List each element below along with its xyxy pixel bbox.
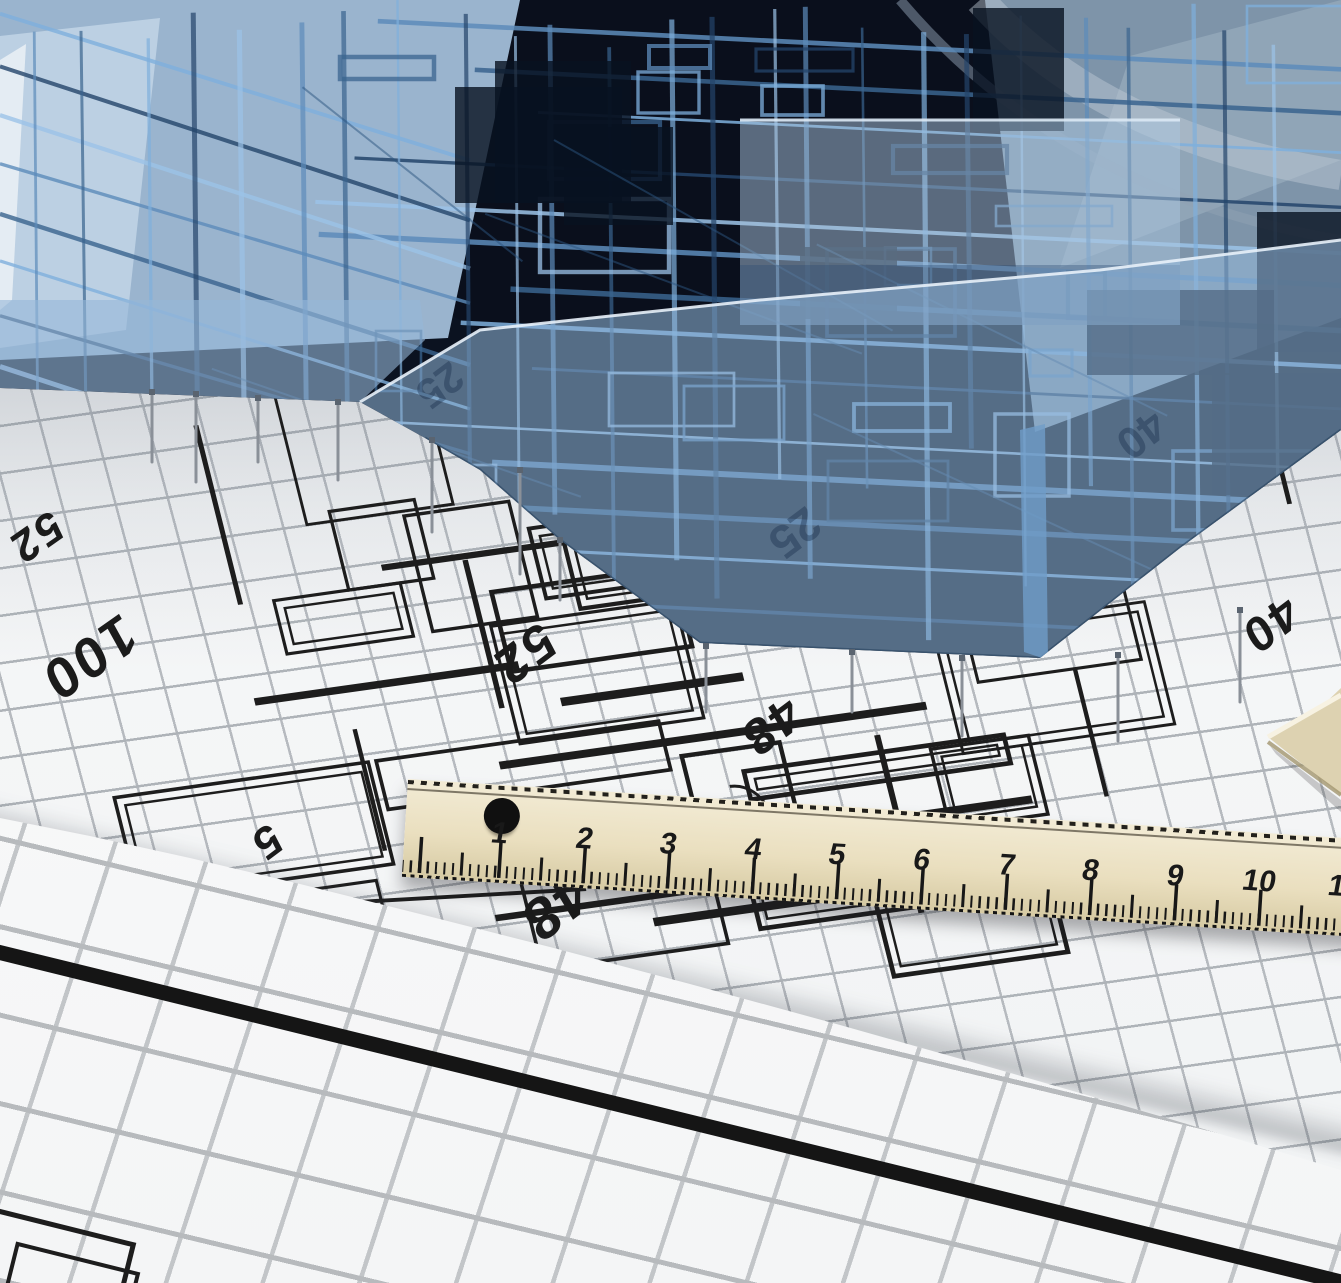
- architectural-render: 100 52 52 48 40 5 48 252540 123456789101…: [0, 0, 1341, 1283]
- set-square-triangle: [0, 0, 1341, 900]
